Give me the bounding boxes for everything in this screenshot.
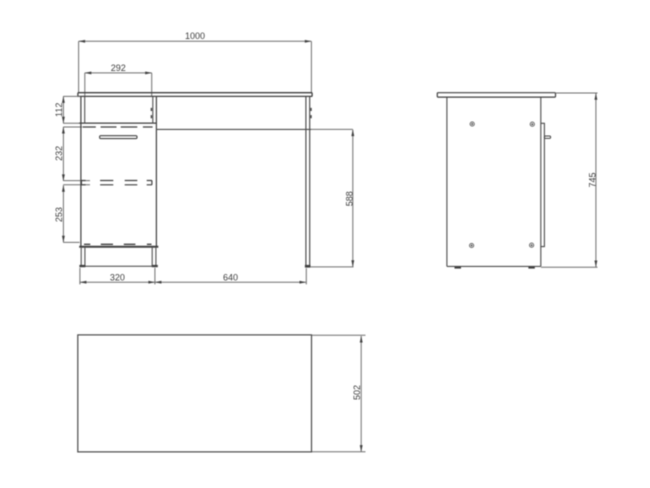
svg-text:320: 320 [110, 272, 125, 282]
svg-text:745: 745 [588, 172, 598, 187]
svg-text:640: 640 [223, 272, 238, 282]
svg-text:253: 253 [54, 207, 64, 222]
svg-text:112: 112 [54, 103, 64, 117]
svg-text:292: 292 [111, 63, 126, 73]
svg-text:1000: 1000 [185, 31, 205, 41]
svg-text:232: 232 [54, 146, 64, 161]
svg-text:588: 588 [344, 191, 354, 206]
svg-text:502: 502 [352, 385, 362, 400]
